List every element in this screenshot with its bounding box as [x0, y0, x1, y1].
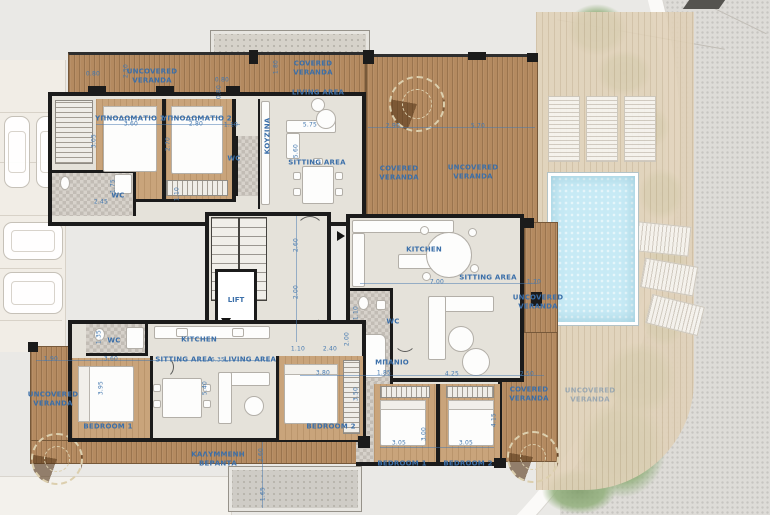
- label-wc-b: WC: [386, 318, 399, 327]
- label-wc-c: WC: [107, 337, 120, 346]
- label-mpanio: ΜΠΑΝΙΟ: [375, 359, 409, 368]
- dim-label: 5.40: [202, 381, 209, 395]
- dim-label: 2.60: [258, 448, 265, 462]
- label-bedroom2-b: BEDROOM 2: [443, 460, 492, 469]
- dim-label: 5.75: [303, 122, 317, 129]
- label-bedroom1-c: BEDROOM 1: [83, 423, 132, 432]
- dim-label: 5.70: [471, 123, 485, 130]
- dim-label: 5.60: [293, 144, 300, 158]
- dim-label: 3.05: [91, 134, 98, 148]
- label-living-area-a: LIVING AREA: [292, 89, 344, 98]
- dim-label: 3.05: [392, 440, 406, 447]
- dim-label: 6.35: [211, 357, 225, 364]
- dim-label: 2.45: [94, 199, 108, 206]
- dim-label: 3.80: [316, 370, 330, 377]
- labels-layer: UNCOVERED VERANDACOVERED VERANDALIVING A…: [0, 0, 770, 515]
- label-covered-veranda-top: COVERED VERANDA: [293, 59, 333, 77]
- label-uncovered-veranda-b: UNCOVERED VERANDA: [513, 293, 563, 311]
- dim-label: 3.50: [353, 387, 360, 401]
- dim-label: 3.05: [459, 440, 473, 447]
- dim-label: 1.65: [260, 487, 267, 501]
- dim-label: 1.10: [353, 306, 360, 320]
- dim-label: 7.00: [430, 279, 444, 286]
- dim-label: 3.60: [104, 356, 118, 363]
- dim-label: 0.80: [216, 85, 223, 99]
- label-kitchen-c: KITCHEN: [181, 336, 217, 345]
- label-uncovered-veranda-top-left: UNCOVERED VERANDA: [127, 67, 177, 85]
- label-living-area-c: LIVING AREA: [224, 356, 276, 365]
- label-ypnodomatio-1: ΥΠΝΟΔΩΜΑΤΙΟ 1: [95, 115, 165, 124]
- label-uncovered-veranda-c: UNCOVERED VERANDA: [28, 390, 78, 408]
- label-wc-a-top: WC: [227, 155, 240, 164]
- label-wc-a-left: WC: [111, 192, 124, 201]
- dim-label: 1.70: [527, 279, 541, 286]
- label-sitting-area-c: SITTING AREA: [155, 356, 212, 365]
- label-kouzina: ΚΟΥΖΙΝΑ: [264, 118, 273, 155]
- dim-label: 3.95: [98, 381, 105, 395]
- dim-label: 2.60: [293, 238, 300, 252]
- dim-label: 2.40: [323, 346, 337, 353]
- label-kalymmeni-veranta: ΚΑΛΥΜΜΕΝΗ ΒΕΡΑΝΤΑ: [191, 450, 245, 468]
- dim-label: 2.70: [165, 137, 172, 151]
- label-sitting-area-b: SITTING AREA: [459, 274, 516, 283]
- label-sitting-area-a: SITTING AREA: [288, 159, 345, 168]
- dim-label: 1.10: [224, 122, 238, 129]
- dim-label: 1.80: [273, 60, 280, 74]
- label-covered-veranda-b: COVERED VERANDA: [509, 385, 549, 403]
- label-covered-veranda-deck: COVERED VERANDA: [379, 164, 419, 182]
- label-bedroom2-c: BEDROOM 2: [306, 423, 355, 432]
- dim-label: 0.80: [86, 71, 100, 78]
- dim-label: 2.50: [520, 371, 534, 378]
- dim-label: 1.10: [291, 346, 305, 353]
- dim-label: 2.00: [344, 332, 351, 346]
- dim-label: 2.90: [386, 123, 400, 130]
- dim-label: 0.80: [215, 77, 229, 84]
- dim-label: 2.80: [189, 121, 203, 128]
- label-ypnodomatio-2: ΥΠΝΟΔΩΜΑΤΙΟ 2: [162, 115, 232, 124]
- floor-plan-drawing: LIFT: [0, 0, 770, 515]
- dim-label: 3.00: [421, 427, 428, 441]
- label-kitchen-b: KITCHEN: [406, 246, 442, 255]
- label-uncovered-veranda-deck: UNCOVERED VERANDA: [448, 163, 498, 181]
- dim-label: 2.00: [293, 285, 300, 299]
- dim-label: 1.10: [174, 187, 181, 201]
- dim-label: 4.15: [491, 413, 498, 427]
- label-bedroom1-b: BEDROOM 1: [377, 460, 426, 469]
- dim-label: 1.75: [110, 179, 117, 193]
- dim-label: 1.85: [377, 370, 391, 377]
- dim-label: 4.25: [445, 371, 459, 378]
- dim-label: 1.35: [96, 330, 103, 344]
- dim-label: 3.60: [124, 121, 138, 128]
- label-uncovered-veranda-pool: UNCOVERED VERANDA: [565, 386, 615, 404]
- dim-label: 2.50: [123, 64, 130, 78]
- dim-label: 1.90: [44, 356, 58, 363]
